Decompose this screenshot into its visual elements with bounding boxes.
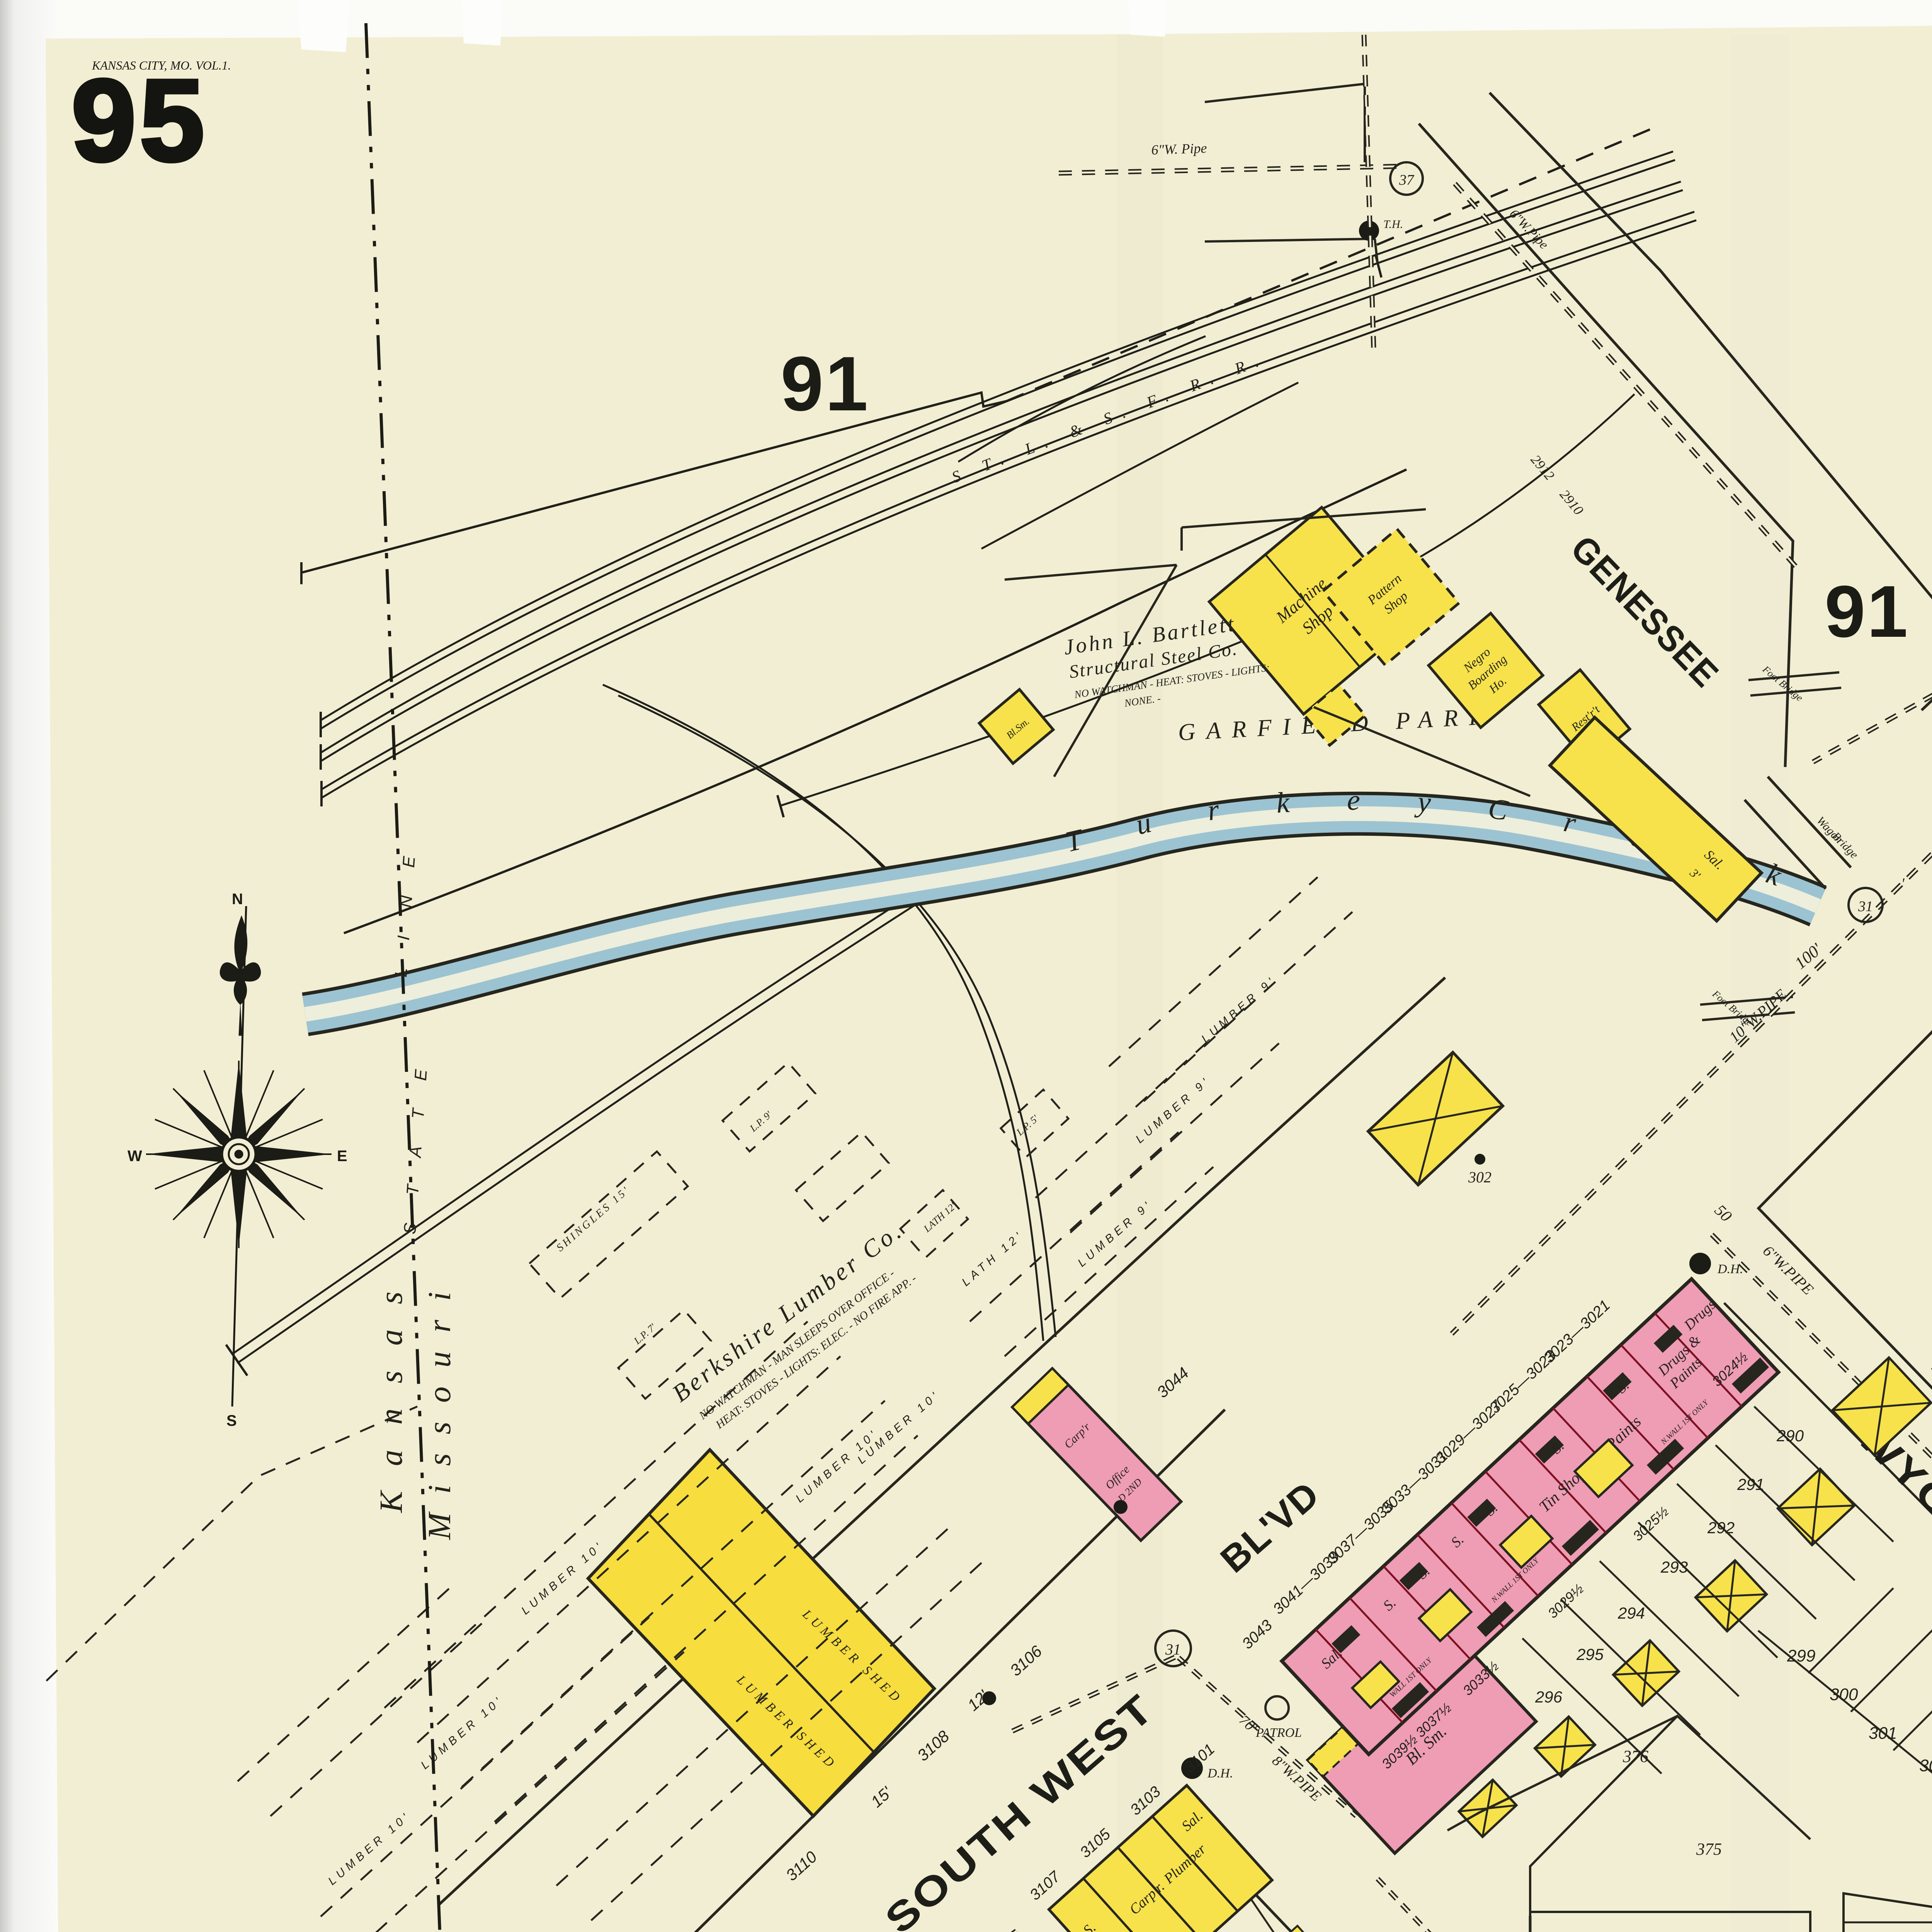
svg-text:295: 295 xyxy=(1576,1645,1604,1663)
svg-text:31: 31 xyxy=(1858,898,1873,915)
svg-text:290: 290 xyxy=(1776,1427,1804,1445)
svg-text:375: 375 xyxy=(1696,1840,1722,1859)
svg-text:91: 91 xyxy=(781,341,869,427)
svg-text:PATROL: PATROL xyxy=(1255,1726,1302,1740)
svg-text:95: 95 xyxy=(71,55,208,185)
svg-text:D.H.: D.H. xyxy=(1207,1766,1233,1781)
svg-text:291: 291 xyxy=(1737,1475,1764,1493)
svg-text:299: 299 xyxy=(1787,1646,1815,1665)
svg-text:31: 31 xyxy=(1165,1641,1181,1658)
svg-text:91: 91 xyxy=(1825,571,1909,653)
svg-text:302: 302 xyxy=(1468,1168,1492,1186)
svg-text:292: 292 xyxy=(1707,1519,1735,1537)
svg-text:N: N xyxy=(232,891,243,908)
svg-text:301: 301 xyxy=(1869,1724,1897,1743)
svg-text:E: E xyxy=(337,1148,347,1165)
svg-text:376: 376 xyxy=(1622,1747,1648,1766)
svg-text:M i s s o u r i: M i s s o u r i xyxy=(422,1286,457,1540)
svg-text:6"W. Pipe: 6"W. Pipe xyxy=(1151,140,1207,158)
svg-text:T.H.: T.H. xyxy=(1383,218,1403,231)
svg-text:W: W xyxy=(128,1148,142,1165)
svg-text:294: 294 xyxy=(1617,1604,1645,1622)
svg-text:293: 293 xyxy=(1660,1558,1688,1576)
svg-text:296: 296 xyxy=(1535,1688,1563,1706)
svg-text:300: 300 xyxy=(1830,1685,1858,1704)
svg-text:K a n s a s: K a n s a s xyxy=(373,1283,409,1513)
svg-text:': ' xyxy=(1901,875,1905,892)
svg-text:37: 37 xyxy=(1399,172,1415,188)
svg-text:S: S xyxy=(226,1412,237,1429)
svg-text:302: 302 xyxy=(1919,1756,1932,1775)
